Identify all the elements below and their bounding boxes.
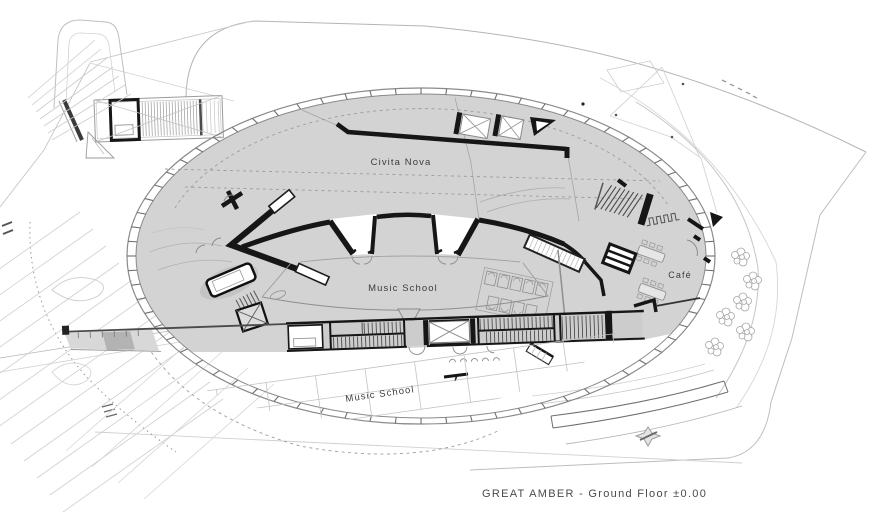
ramp: [526, 343, 553, 364]
vegetation-blob: [52, 278, 104, 301]
trees: [706, 248, 762, 356]
path-dashes: [722, 80, 757, 98]
label-civita-nova: Civita Nova: [371, 157, 432, 168]
sheet-caption: GREAT AMBER - Ground Floor ±0.00: [482, 488, 707, 500]
parcel-diamond: [607, 61, 664, 92]
core-elevator: [423, 318, 476, 345]
star-marker: [636, 427, 660, 446]
service-ramp-structure: [94, 96, 223, 142]
vegetation-blob: [52, 363, 91, 385]
floor-plan-drawing: Civita Nova Music School Café Music Scho…: [0, 0, 882, 526]
label-music-school-upper: Music School: [368, 283, 438, 294]
label-music-school-lower: Music School: [345, 384, 416, 405]
exterior-steps: [532, 364, 742, 444]
label-cafe: Café: [668, 270, 691, 280]
floor-plan-sheet: Civita Nova Music School Café Music Scho…: [0, 0, 882, 526]
